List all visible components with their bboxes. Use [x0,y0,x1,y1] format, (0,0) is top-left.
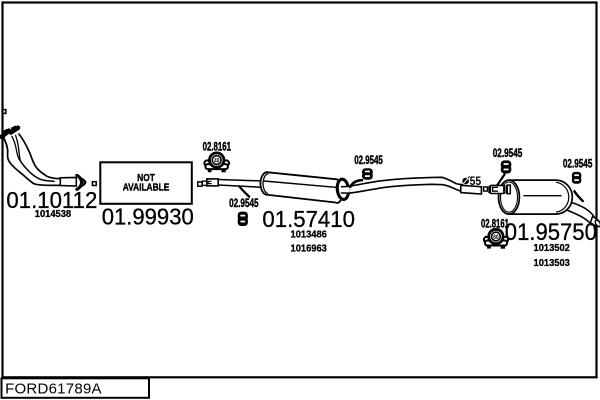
svg-text:01.95750: 01.95750 [505,218,597,245]
svg-text:02.9545: 02.9545 [354,155,383,168]
svg-text:02.9545: 02.9545 [229,198,259,211]
svg-text:FORD61789A: FORD61789A [5,380,102,397]
svg-text:1013502: 1013502 [534,242,571,254]
svg-text:1014538: 1014538 [35,209,72,221]
svg-text:01.99930: 01.99930 [102,204,194,230]
svg-text:AVAILABLE: AVAILABLE [123,182,170,193]
svg-text:1016963: 1016963 [291,243,328,255]
svg-text:02.9545: 02.9545 [493,148,523,161]
svg-text:02.9545: 02.9545 [563,158,593,171]
svg-text:60: 60 [493,234,498,241]
svg-text:1013503: 1013503 [534,258,571,270]
svg-text:1013486: 1013486 [291,229,328,241]
svg-text:40: 40 [214,158,219,165]
